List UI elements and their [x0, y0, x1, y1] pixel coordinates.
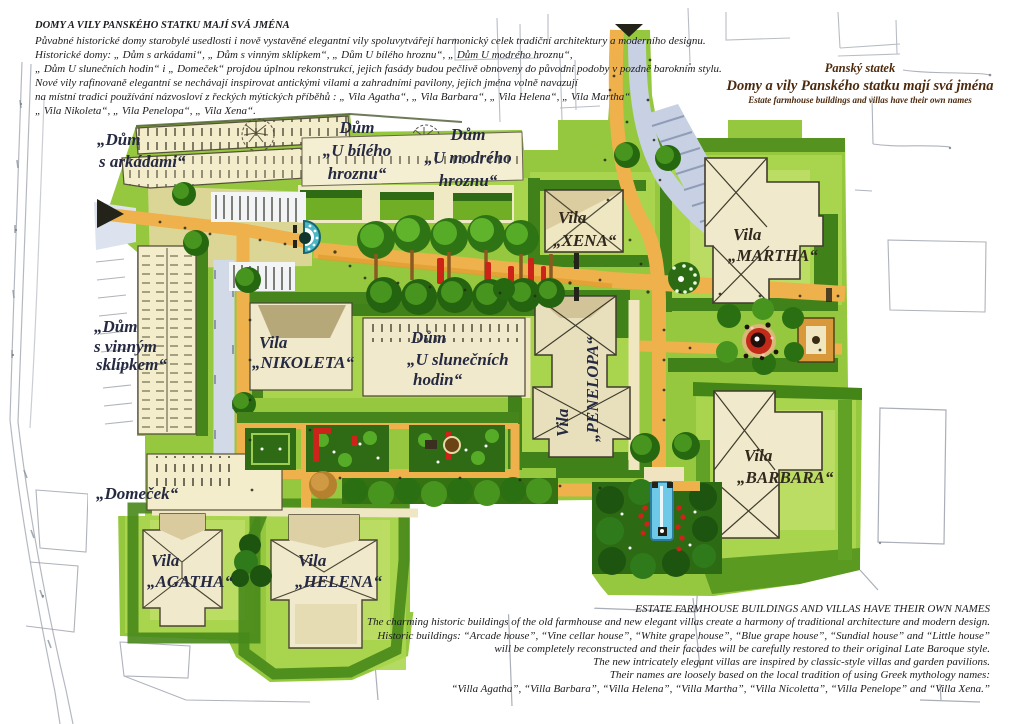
svg-text:„ Vila Nikoleta“, „ Vila Pene: „ Vila Nikoleta“, „ Vila Penelopa“, „ Vi…	[35, 105, 256, 117]
svg-text:hodin“: hodin“	[413, 370, 463, 389]
svg-text:„Dům: „Dům	[94, 317, 137, 336]
svg-text:„BARBARA“: „BARBARA“	[737, 468, 834, 487]
svg-text:Vila: Vila	[558, 208, 587, 227]
svg-text:Vila: Vila	[744, 446, 773, 465]
svg-text:Dům: Dům	[450, 125, 486, 144]
svg-text:Půvabné historické domy starob: Půvabné historické domy starobylé usedlo…	[34, 35, 706, 47]
svg-text:„HELENA“: „HELENA“	[295, 572, 382, 591]
svg-text:na místní tradici používání ná: na místní tradici používání názvosloví z…	[35, 91, 630, 103]
svg-text:„AGATHA“: „AGATHA“	[147, 572, 233, 591]
svg-text:„MARTHA“: „MARTHA“	[728, 246, 818, 265]
svg-text:Their names are loosely based: Their names are loosely based on the loc…	[610, 669, 990, 681]
svg-text:ESTATE FARMHOUSE BUILDINGS AND: ESTATE FARMHOUSE BUILDINGS AND VILLAS HA…	[634, 603, 990, 615]
svg-text:„Domeček“: „Domeček“	[96, 484, 179, 503]
svg-text:The charming historic building: The charming historic buildings of the o…	[367, 616, 990, 628]
svg-text:hroznu“: hroznu“	[439, 171, 498, 190]
svg-text:Panský statek: Panský statek	[825, 61, 896, 75]
svg-text:s arkádami“: s arkádami“	[98, 152, 186, 171]
svg-text:s vinným: s vinným	[93, 337, 157, 356]
svg-text:Vila: Vila	[151, 551, 180, 570]
svg-text:will be completely reconstruct: will be completely reconstructed and the…	[494, 643, 990, 655]
svg-text:Historic buildings: “Arcade ho: Historic buildings: “Arcade house”, “Vin…	[376, 630, 990, 642]
svg-text:„ Dům U slunečních hodin“ i „: „ Dům U slunečních hodin“ i „ Domeček“ p…	[35, 63, 722, 75]
svg-text:„Dům: „Dům	[97, 130, 140, 149]
svg-text:„NIKOLETA“: „NIKOLETA“	[252, 353, 355, 372]
svg-text:Dům: Dům	[339, 118, 375, 137]
svg-text:Estate farmhouse buildings and: Estate farmhouse buildings and villas ha…	[747, 95, 972, 105]
svg-text:Historické domy: „ Dům s arkád: Historické domy: „ Dům s arkádami“, „ Dů…	[34, 49, 573, 61]
svg-text:Vila: Vila	[733, 225, 762, 244]
svg-text:“Villa Agatha”, “Villa Barbara: “Villa Agatha”, “Villa Barbara”, “Villa …	[451, 683, 990, 695]
svg-text:Dům: Dům	[410, 328, 446, 347]
svg-text:Domy a vily Panského statku ma: Domy a vily Panského statku mají svá jmé…	[725, 78, 993, 94]
svg-text:Vila: Vila	[298, 551, 327, 570]
svg-text:hroznu“: hroznu“	[328, 164, 387, 183]
svg-text:sklípkem“: sklípkem“	[95, 355, 167, 374]
svg-text:The new intricately elegant vi: The new intricately elegant villas are i…	[593, 656, 990, 668]
svg-text:„U bílého: „U bílého	[323, 141, 391, 160]
svg-text:„U slunečních: „U slunečních	[407, 350, 509, 369]
svg-text:„U modrého: „U modrého	[424, 148, 511, 167]
svg-text:„XENA“: „XENA“	[553, 231, 617, 250]
svg-text:Vila: Vila	[553, 408, 572, 437]
svg-text:„PENELOPA“: „PENELOPA“	[583, 336, 602, 442]
svg-text:Nové vily rafinovaně elegantní: Nové vily rafinovaně elegantní se necháv…	[34, 77, 579, 89]
svg-text:Vila: Vila	[259, 333, 288, 352]
svg-text:DOMY A VILY PANSKÉHO STATKU MA: DOMY A VILY PANSKÉHO STATKU MAJÍ SVÁ JMÉ…	[34, 19, 290, 31]
